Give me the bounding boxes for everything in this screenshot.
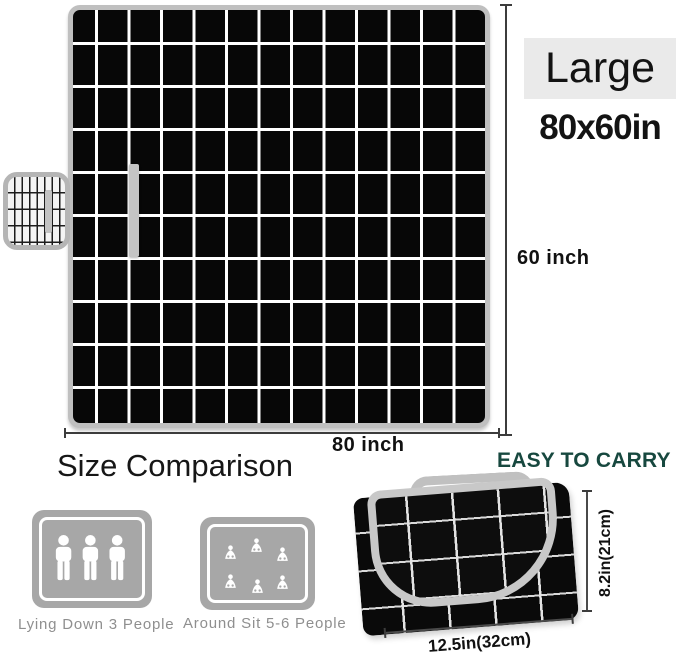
lying-capacity-caption: Lying Down 3 People [18, 616, 174, 633]
size-comparison-title: Size Comparison [57, 448, 293, 484]
three-standing-people-icon [53, 527, 131, 591]
sitting-capacity-card [200, 517, 315, 610]
folded-blanket-flap [366, 477, 563, 611]
folded-height-label: 8.2in(21cm) [597, 503, 615, 603]
height-label: 60 inch [517, 247, 589, 270]
lying-capacity-card [32, 510, 152, 608]
side-flap-strap-detail [45, 190, 52, 233]
width-dimension-line [64, 432, 500, 434]
size-badge: Large [524, 38, 676, 99]
height-dimension-line [505, 4, 507, 436]
blanket-side-flap [3, 172, 70, 250]
width-label: 80 inch [332, 434, 404, 457]
blanket-strap-detail [129, 164, 139, 257]
card-outline [39, 517, 145, 601]
folded-blanket [350, 468, 590, 640]
sitting-capacity-caption: Around Sit 5-6 People [183, 615, 347, 632]
picnic-blanket-infographic: 60 inch 80 inch Large 80x60in Size Compa… [0, 0, 679, 657]
folded-height-dimension-line [586, 490, 588, 612]
size-dimensions-text: 80x60in [524, 108, 676, 148]
folded-blanket-body [353, 482, 579, 637]
card-outline [207, 524, 308, 603]
six-sitting-people-icon [214, 530, 302, 598]
